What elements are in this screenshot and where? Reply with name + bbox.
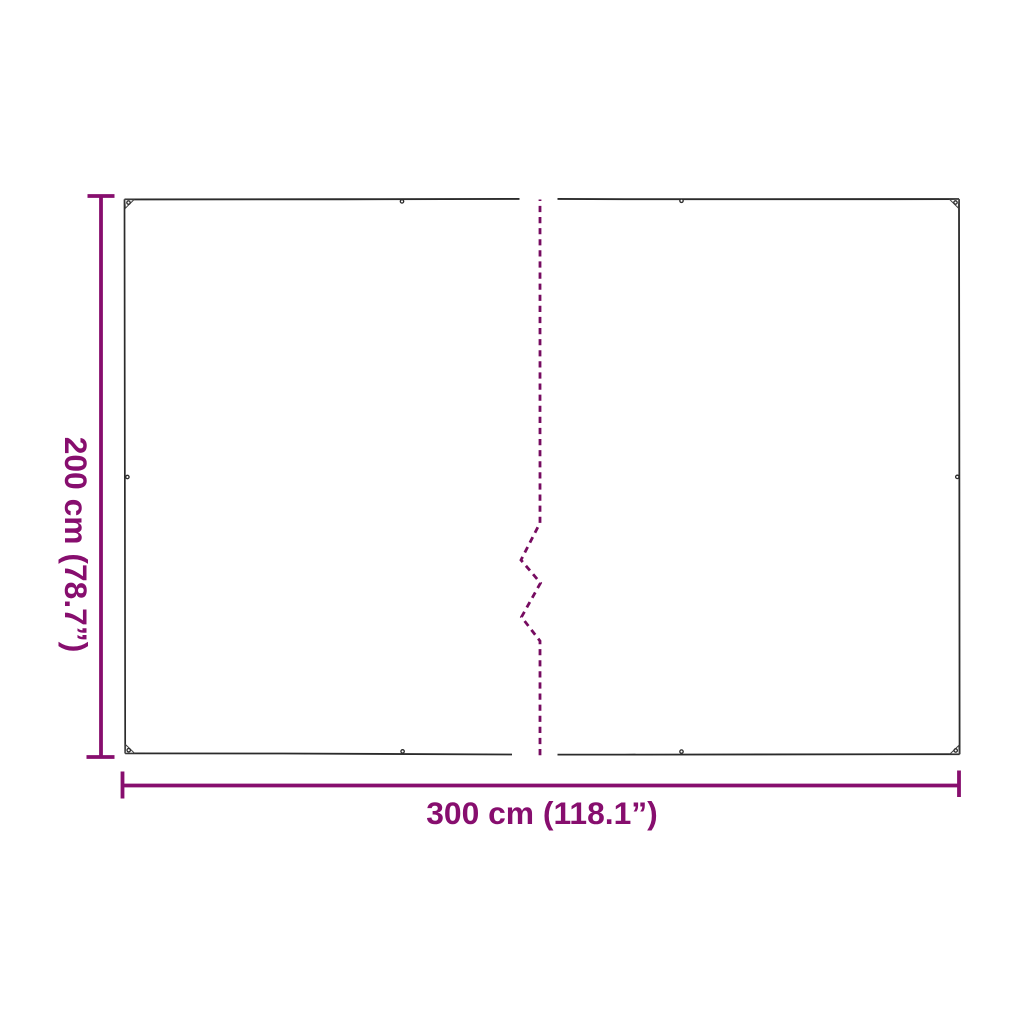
svg-text:200 cm (78.7”): 200 cm (78.7”) (58, 437, 94, 653)
svg-text:300 cm (118.1”): 300 cm (118.1”) (426, 795, 658, 831)
